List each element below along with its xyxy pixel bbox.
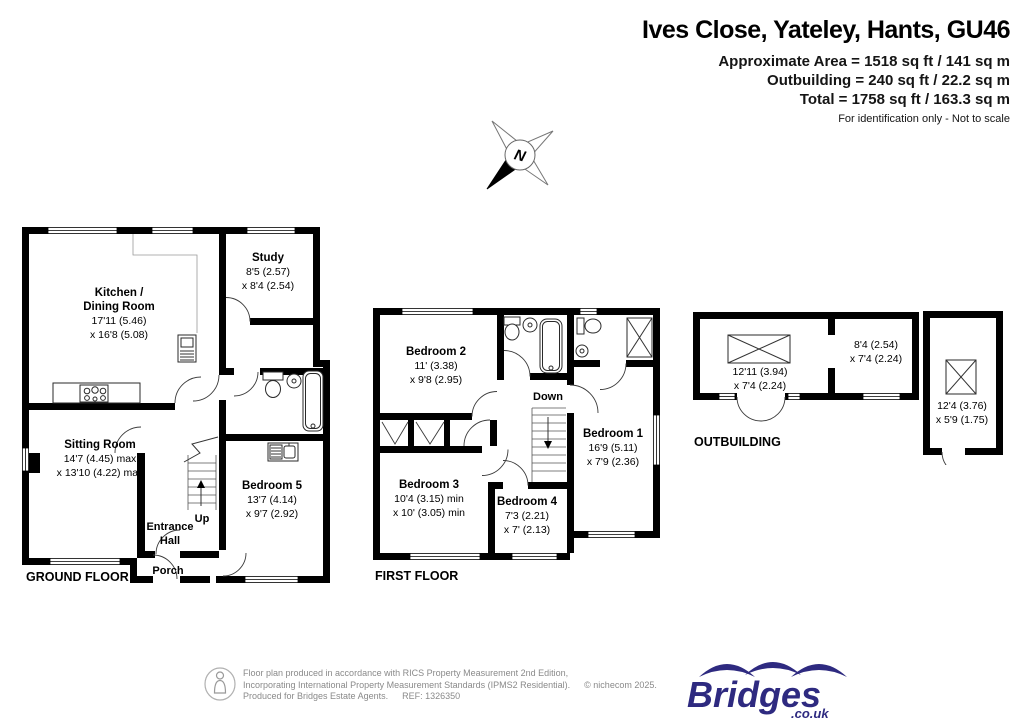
label-study-dim2: x 8'4 (2.54): [242, 280, 294, 292]
bathroom-fixtures-first: [504, 317, 562, 373]
label-study-name: Study: [252, 252, 285, 264]
label-bed5-dim1: 13'7 (4.14): [247, 494, 297, 506]
label-bed4-name: Bedroom 4: [497, 496, 558, 508]
bridges-logo: Bridges .co.uk: [683, 650, 868, 720]
header: Ives Close, Yateley, Hants, GU46 Approxi…: [642, 16, 1010, 125]
footer-line3-wrap: Produced for Bridges Estate Agents.REF: …: [243, 691, 683, 703]
first-floor-label: FIRST FLOOR: [375, 569, 458, 583]
label-outright-dim2: x 5'9 (1.75): [936, 414, 988, 426]
label-kitchen-dim2: x 16'8 (5.08): [90, 329, 148, 341]
footer-ref: REF: 1326350: [402, 691, 460, 701]
label-bed5-name: Bedroom 5: [242, 480, 303, 492]
label-bed1-dim1: 16'9 (5.11): [588, 442, 637, 454]
label-bed3-name: Bedroom 3: [399, 479, 459, 491]
down-arrow: [544, 441, 552, 449]
footer-line3: Produced for Bridges Estate Agents.: [243, 691, 388, 701]
floorplan-page: Ives Close, Yateley, Hants, GU46 Approxi…: [0, 0, 1024, 724]
outbuilding-plan: 12'11 (3.94) x 7'4 (2.24) 8'4 (2.54) x 7…: [690, 305, 1010, 465]
label-up: Up: [195, 513, 210, 525]
compass-icon: N: [460, 100, 580, 210]
first-room-labels: Bedroom 2 11' (3.38) x 9'8 (2.95) Down B…: [375, 346, 644, 583]
ground-room-labels: Kitchen / Dining Room 17'11 (5.46) x 16'…: [26, 252, 303, 584]
label-porch: Porch: [152, 565, 183, 577]
nichecom-person-icon: [200, 663, 240, 707]
bed5-sink-unit: [268, 443, 298, 461]
disclaimer: For identification only - Not to scale: [642, 113, 1010, 125]
label-bed3-dim2: x 10' (3.05) min: [393, 507, 465, 519]
toilet-icon: [577, 318, 584, 334]
ground-floor-label: GROUND FLOOR: [26, 570, 129, 584]
stairs-down: [532, 408, 566, 482]
label-kitchen-dim1: 17'11 (5.46): [92, 315, 147, 327]
label-sitting-name: Sitting Room: [64, 439, 136, 451]
label-outleft-dim2: x 7'4 (2.24): [734, 380, 786, 392]
toilet-icon: [263, 372, 283, 380]
label-bed2-dim1: 11' (3.38): [414, 360, 457, 372]
total-area-line: Total = 1758 sq ft / 163.3 sq m: [642, 90, 1010, 109]
label-study-dim1: 8'5 (2.57): [246, 266, 290, 278]
first-floor-plan: Bedroom 2 11' (3.38) x 9'8 (2.95) Down B…: [370, 305, 670, 595]
label-bed1-name: Bedroom 1: [583, 428, 644, 440]
bridges-logo-sub: .co.uk: [791, 706, 829, 720]
label-entrance2: Hall: [160, 535, 180, 547]
outbuilding-area-line: Outbuilding = 240 sq ft / 22.2 sq m: [642, 71, 1010, 90]
stairs-up: [184, 437, 218, 510]
french-door-gap: [737, 393, 785, 400]
footer-line2: Incorporating International Property Mea…: [243, 680, 570, 690]
closet-bifold-2: [416, 422, 444, 444]
label-bed3-dim1: 10'4 (3.15) min: [394, 493, 464, 505]
kitchen-fixtures: [53, 335, 196, 403]
ensuite-fixtures: [576, 318, 652, 357]
label-outmid-dim2: x 7'4 (2.24): [850, 353, 902, 365]
label-bed1-dim2: x 7'9 (2.36): [587, 456, 639, 468]
label-sitting-dim1: 14'7 (4.45) max: [64, 453, 137, 465]
up-arrow: [197, 480, 205, 488]
label-bed5-dim2: x 9'7 (2.92): [246, 508, 298, 520]
footer-copyright: © nichecom 2025.: [584, 680, 657, 690]
label-kitchen-name2: Dining Room: [83, 301, 155, 313]
footer-line1: Floor plan produced in accordance with R…: [243, 668, 683, 680]
label-bed2-dim2: x 9'8 (2.95): [410, 374, 462, 386]
footer-line2-wrap: Incorporating International Property Mea…: [243, 680, 683, 692]
closet-bifold-1: [382, 422, 408, 444]
ground-floor-plan: Kitchen / Dining Room 17'11 (5.46) x 16'…: [20, 215, 350, 595]
page-title: Ives Close, Yateley, Hants, GU46: [642, 16, 1010, 45]
chimney-breast: [29, 453, 40, 473]
outbuilding-label: OUTBUILDING: [694, 435, 781, 449]
label-bed4-dim1: 7'3 (2.21): [505, 510, 549, 522]
label-outleft-dim1: 12'11 (3.94): [733, 366, 788, 378]
label-outmid-dim1: 8'4 (2.54): [854, 339, 898, 351]
footer-disclaimer: Floor plan produced in accordance with R…: [243, 668, 683, 703]
bathroom-fixtures-ground: [263, 371, 323, 431]
label-bed2-name: Bedroom 2: [406, 346, 466, 358]
label-down: Down: [533, 391, 563, 403]
label-bed4-dim2: x 7' (2.13): [504, 524, 550, 536]
label-outright-dim1: 12'4 (3.76): [937, 400, 987, 412]
label-kitchen-name1: Kitchen /: [95, 287, 144, 299]
label-sitting-dim2: x 13'10 (4.22) max: [57, 467, 144, 479]
approx-area-line: Approximate Area = 1518 sq ft / 141 sq m: [642, 52, 1010, 71]
label-entrance1: Entrance: [146, 521, 193, 533]
